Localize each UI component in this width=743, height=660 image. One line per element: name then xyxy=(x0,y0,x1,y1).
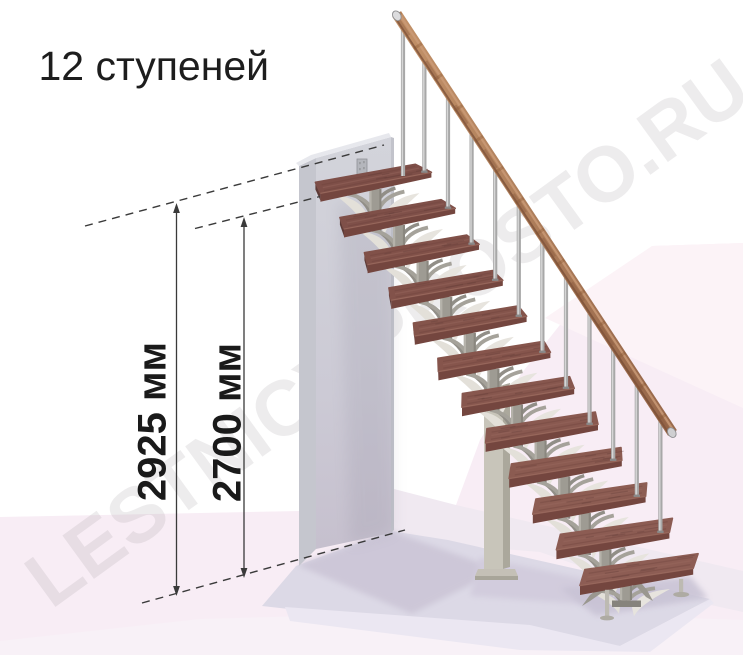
svg-text:12 ступеней: 12 ступеней xyxy=(39,43,270,89)
svg-text:2925 мм: 2925 мм xyxy=(131,342,175,501)
svg-text:2700 мм: 2700 мм xyxy=(206,343,250,502)
